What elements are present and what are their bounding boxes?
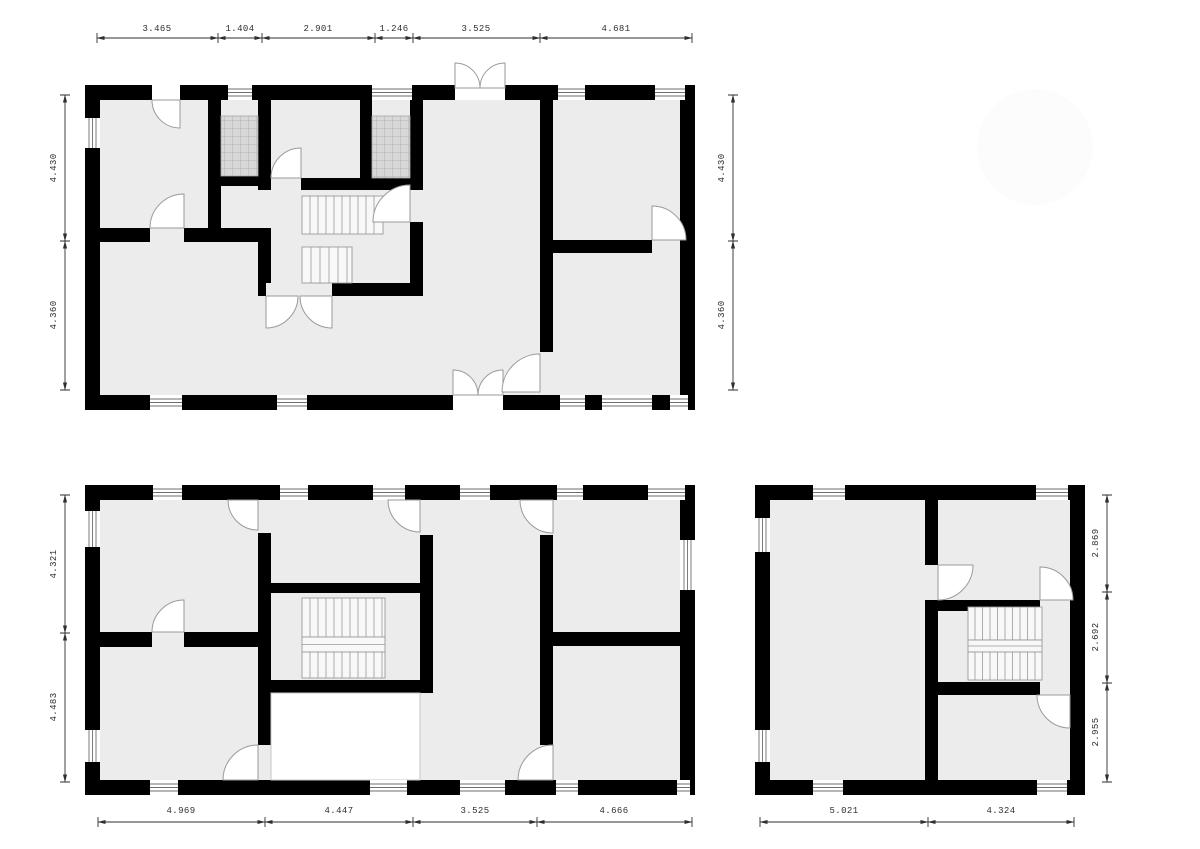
window [813, 780, 843, 795]
dim-label: 4.324 [986, 806, 1015, 816]
dim-label: 2.901 [303, 24, 332, 34]
window [556, 780, 578, 795]
floor-plan-2: 4.321 4.483 4.969 4.447 3.525 4.666 [49, 485, 695, 827]
window [150, 395, 182, 410]
dimension-col-right: 4.430 4.360 [717, 95, 738, 390]
dimension-col-right: 2.869 2.692 2.955 [1091, 495, 1112, 782]
window [370, 780, 407, 795]
window [373, 485, 405, 500]
window [680, 540, 695, 590]
window [1036, 485, 1068, 500]
window [557, 485, 583, 500]
void-room [271, 693, 420, 780]
dimension-row-top: 3.465 1.404 2.901 1.246 3.525 4.681 [97, 24, 692, 43]
dim-label: 3.525 [461, 24, 490, 34]
window [85, 511, 100, 547]
window [460, 780, 505, 795]
dim-label: 3.465 [142, 24, 171, 34]
window [153, 485, 182, 500]
window [755, 730, 770, 762]
dimension-row-bottom: 4.969 4.447 3.525 4.666 [98, 806, 692, 827]
window [670, 395, 688, 410]
window [372, 85, 412, 100]
dim-label: 1.404 [225, 24, 254, 34]
window [460, 485, 490, 500]
window [755, 518, 770, 552]
floor-plan-3: 2.869 2.692 2.955 5.021 4.324 [755, 485, 1112, 827]
dim-label: 3.525 [460, 806, 489, 816]
stairs [968, 607, 1042, 680]
dimension-col-left: 4.321 4.483 [49, 495, 70, 782]
dim-label: 2.869 [1091, 528, 1101, 557]
dimension-row-bottom: 5.021 4.324 [760, 806, 1074, 827]
floor-plan-drawing: 3.465 1.404 2.901 1.246 3.525 4.681 4.43… [0, 0, 1200, 849]
window [677, 780, 690, 795]
dimension-col-left: 4.430 4.360 [49, 95, 70, 390]
dim-label: 4.430 [717, 153, 727, 182]
floor-plan-canvas: 3.465 1.404 2.901 1.246 3.525 4.681 4.43… [0, 0, 1200, 849]
window [280, 485, 308, 500]
stairs [302, 598, 385, 678]
window [602, 395, 652, 410]
dim-label: 2.692 [1091, 622, 1101, 651]
window [558, 85, 585, 100]
window [228, 85, 252, 100]
window [150, 780, 178, 795]
floor-plan-1: 3.465 1.404 2.901 1.246 3.525 4.681 4.43… [49, 24, 738, 410]
dim-label: 4.447 [324, 806, 353, 816]
window [277, 395, 307, 410]
dim-label: 4.969 [166, 806, 195, 816]
dim-label: 5.021 [829, 806, 858, 816]
dim-label: 4.666 [599, 806, 628, 816]
dim-label: 4.360 [49, 300, 59, 329]
window [655, 85, 685, 100]
dim-label: 2.955 [1091, 717, 1101, 746]
window [813, 485, 845, 500]
window [560, 395, 585, 410]
window [85, 118, 100, 148]
window [85, 730, 100, 762]
dim-label: 4.321 [49, 549, 59, 578]
watermark [977, 89, 1093, 205]
dim-label: 4.360 [717, 300, 727, 329]
double-door-top [455, 63, 505, 100]
window [648, 485, 685, 500]
dim-label: 4.681 [601, 24, 630, 34]
dim-label: 1.246 [379, 24, 408, 34]
dim-label: 4.483 [49, 692, 59, 721]
dim-label: 4.430 [49, 153, 59, 182]
window [1037, 780, 1067, 795]
